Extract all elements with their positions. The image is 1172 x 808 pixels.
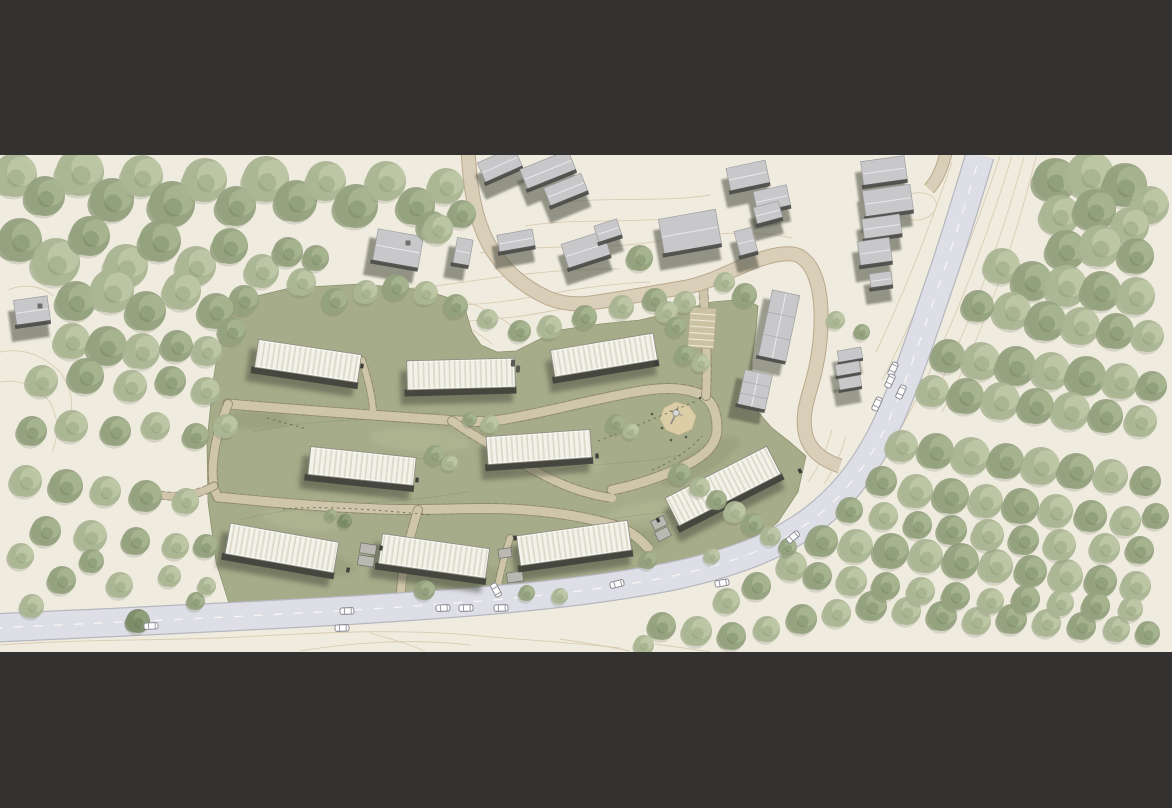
architectural-site-plan <box>0 0 1172 808</box>
existing-building <box>855 237 892 269</box>
existing-building <box>867 271 893 292</box>
new-housing-block <box>404 358 517 396</box>
car <box>459 605 473 612</box>
connector-structure <box>498 548 512 559</box>
connector-structure <box>357 555 374 567</box>
car <box>144 622 158 629</box>
existing-building <box>11 296 51 329</box>
connector-structure <box>506 571 523 583</box>
connector-structure <box>359 543 376 555</box>
parking-lot <box>688 307 717 349</box>
car <box>436 605 450 612</box>
site-plan-drawing <box>0 0 1172 808</box>
car <box>494 605 508 612</box>
car <box>340 608 354 615</box>
car <box>335 625 349 632</box>
